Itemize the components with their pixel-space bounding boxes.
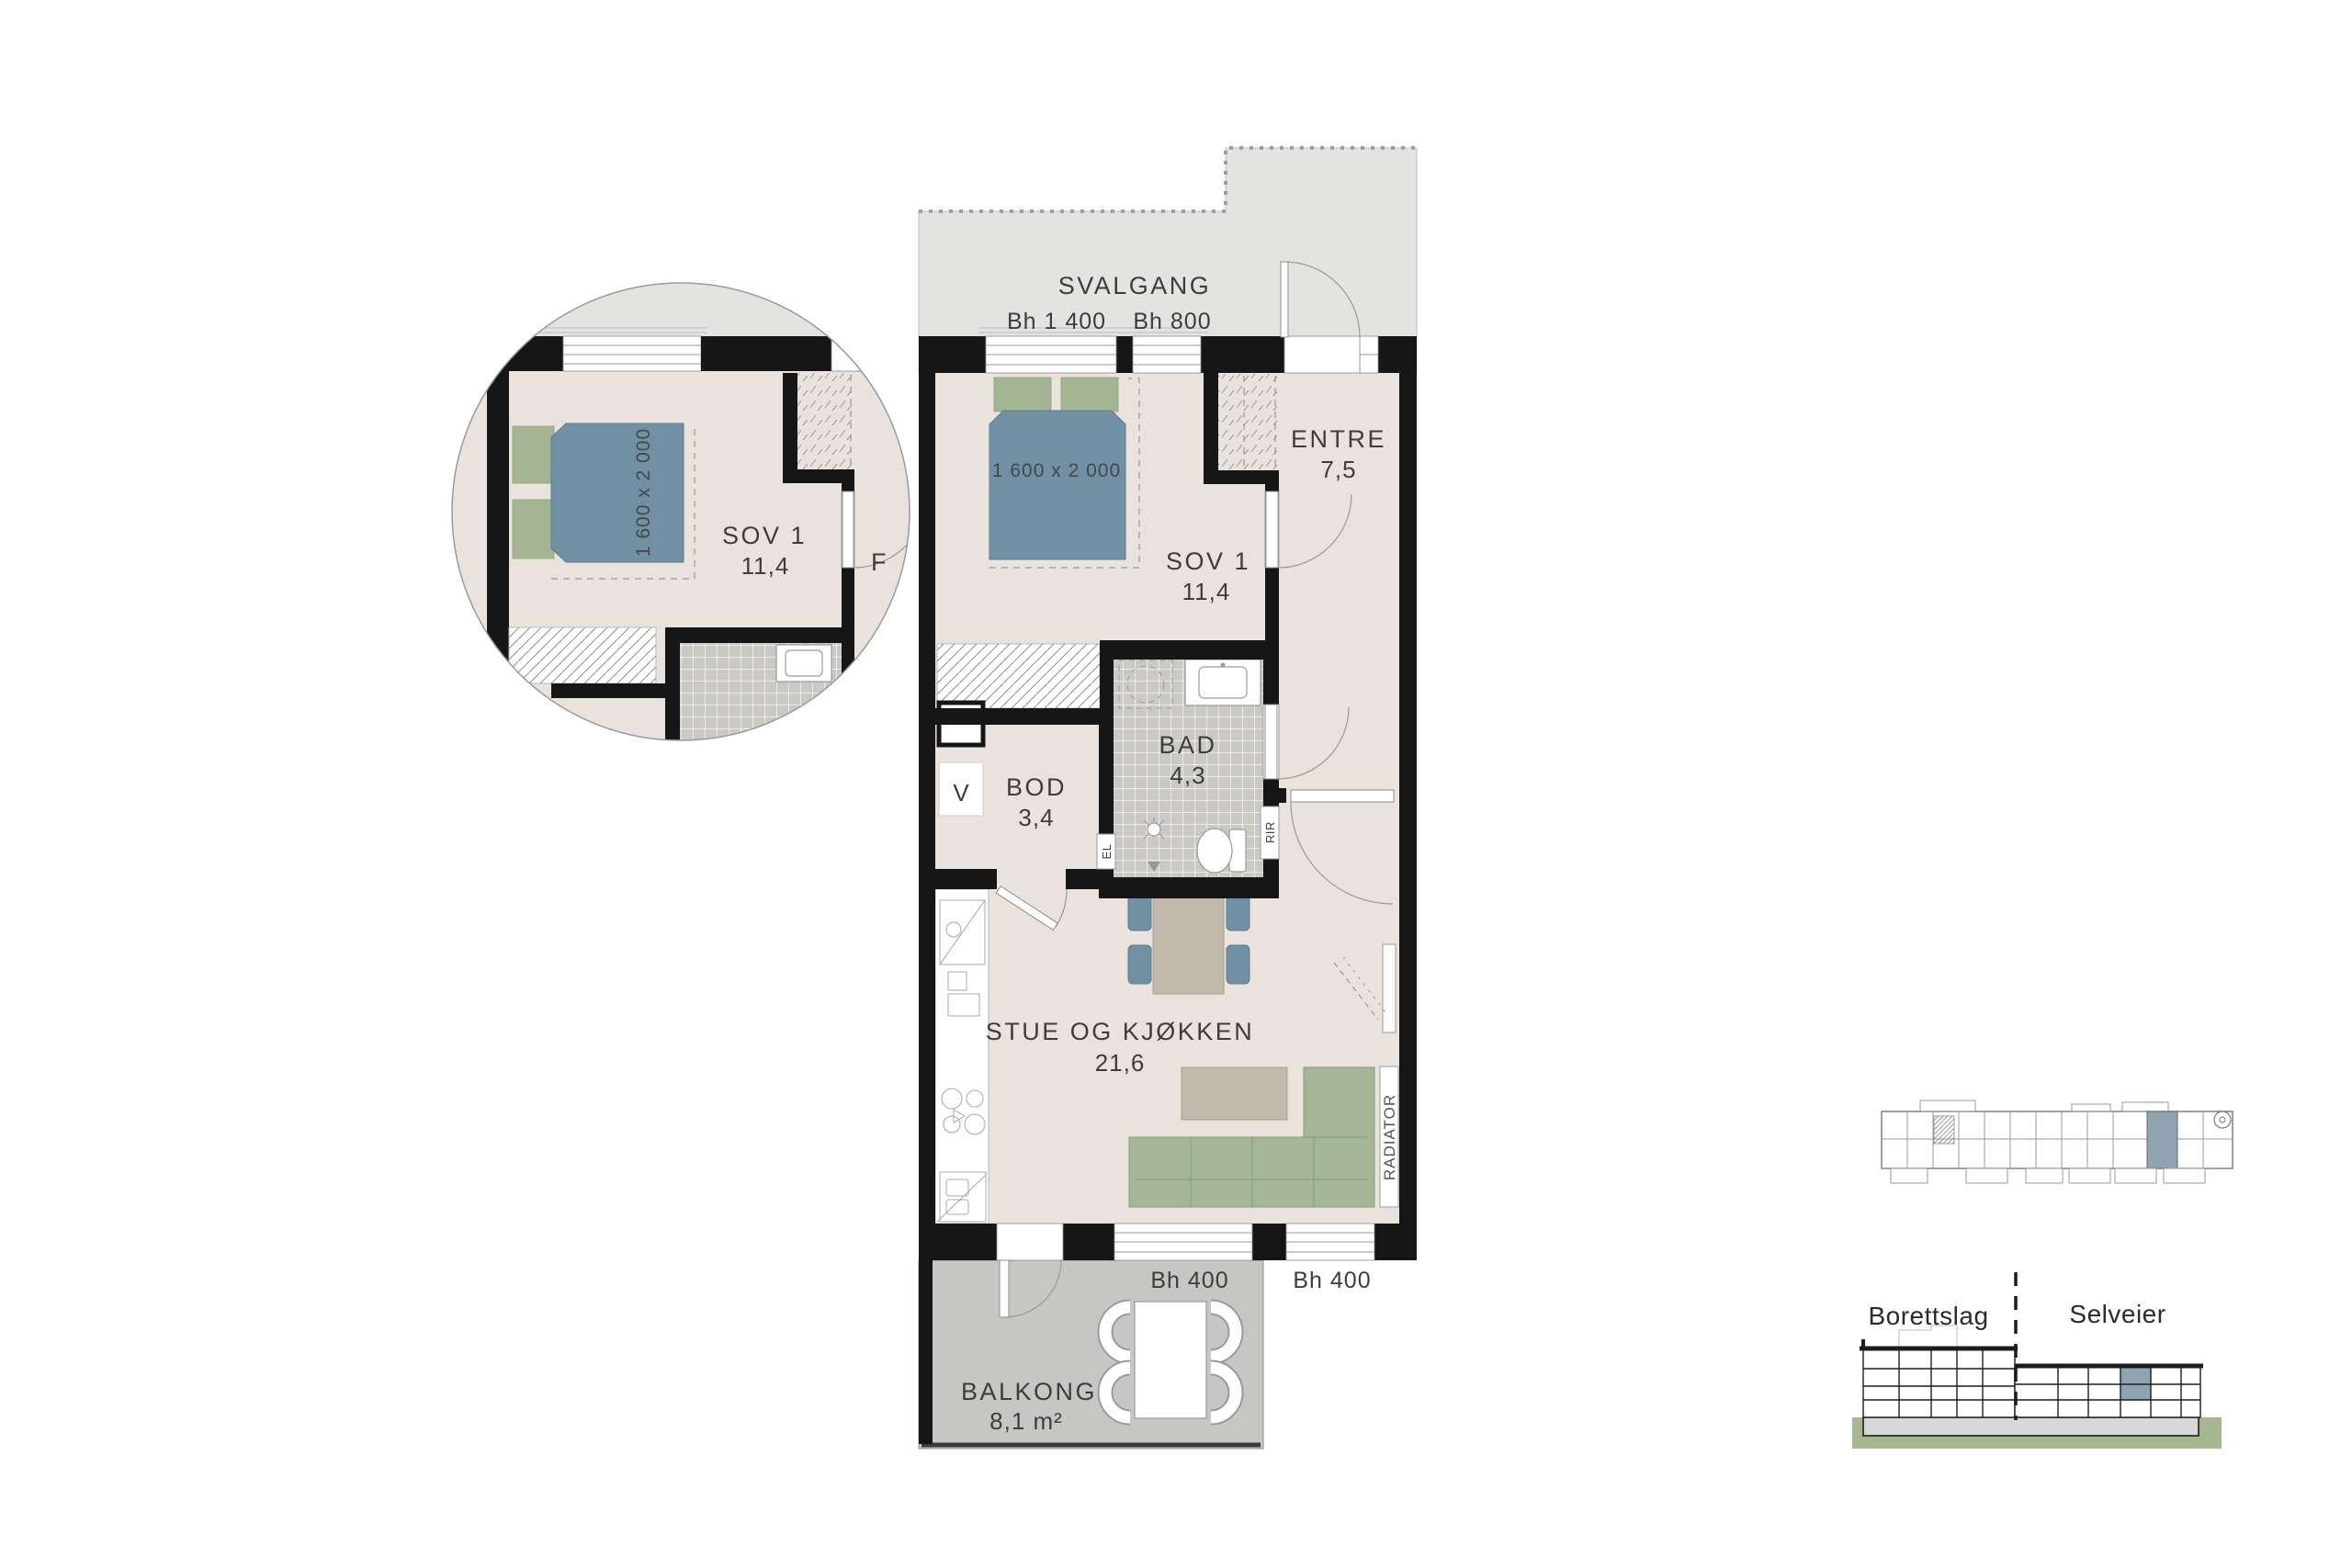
el-label: EL	[1100, 844, 1114, 860]
bed: 1 600 x 2 000	[989, 378, 1139, 568]
window-height-label-bh800: Bh 800	[1133, 309, 1211, 334]
window-height-label-bh1400: Bh 1 400	[1007, 309, 1106, 334]
entrance-sidelight	[1360, 336, 1378, 373]
key-plan	[1882, 1100, 2233, 1183]
sov1-label: SOV 1	[1166, 547, 1250, 575]
sov1-area: 11,4	[1182, 578, 1231, 605]
balcony: BALKONG 8,1 m² Bh 400 Bh 400	[919, 1260, 1372, 1449]
borettslag-label: Borettslag	[1868, 1302, 1988, 1330]
entre-label: ENTRE	[1291, 425, 1386, 453]
floor-plan-drawing: SVALGANG Bh 1 400 Bh 800 BALKONG 8,1 m²	[0, 0, 2352, 1568]
pillow-left	[994, 378, 1051, 412]
balkong-label: BALKONG	[961, 1378, 1097, 1405]
radiator-label: RADIATOR	[1381, 1094, 1398, 1180]
main-plan: SVALGANG Bh 1 400 Bh 800 BALKONG 8,1 m²	[919, 148, 1417, 1449]
detail-bed-dimension: 1 600 x 2 000	[633, 428, 654, 557]
detail-sov1-label: SOV 1	[722, 522, 807, 549]
spiral-stair-icon	[2214, 1111, 2231, 1128]
coffee-table	[1182, 1067, 1287, 1120]
window-bh400-right	[1286, 1224, 1374, 1260]
stue-area: 21,6	[1095, 1049, 1146, 1077]
pillow-right	[1061, 378, 1118, 412]
balkong-area: 8,1 m²	[989, 1407, 1063, 1435]
selveier-block	[2015, 1366, 2203, 1417]
ventilation-label: V	[953, 779, 969, 807]
window-bh800	[1133, 336, 1201, 373]
floor-plan-canvas: SVALGANG Bh 1 400 Bh 800 BALKONG 8,1 m²	[0, 0, 2352, 1568]
base-level	[1863, 1417, 2199, 1436]
bad-area: 4,3	[1170, 761, 1205, 789]
ownership-section: Borettslag Selveier	[1852, 1272, 2222, 1449]
entre-area: 7,5	[1320, 456, 1356, 483]
stair-core	[1934, 1116, 1954, 1144]
bod-area: 3,4	[1018, 804, 1054, 831]
bod-label: BOD	[1006, 773, 1067, 801]
detail-clipped-label: F	[871, 548, 888, 576]
bh400-right-label: Bh 400	[1293, 1268, 1371, 1293]
bad-label: BAD	[1159, 731, 1216, 759]
bed-dimension-label: 1 600 x 2 000	[992, 460, 1121, 481]
window-bh400-left	[1114, 1224, 1252, 1260]
entre-closet	[1218, 374, 1277, 470]
bathroom-sink	[1185, 660, 1261, 705]
kitchen-counter	[935, 889, 989, 1224]
selveier-label: Selveier	[2069, 1300, 2165, 1328]
rir-label: RIR	[1263, 821, 1277, 843]
detail-circle: 1 600 x 2 000 SOV 1	[441, 272, 927, 759]
stue-label: STUE OG KJØKKEN	[986, 1018, 1255, 1045]
wardrobe-strip	[937, 644, 1100, 708]
dining-table	[1153, 883, 1224, 994]
svalgang-label: SVALGANG	[1058, 272, 1212, 299]
highlighted-unit	[2147, 1111, 2177, 1168]
bh400-left-label: Bh 400	[1150, 1268, 1228, 1293]
toilet	[1197, 829, 1246, 873]
key-plan-balconies	[1891, 1168, 2205, 1183]
detail-sov1-area: 11,4	[741, 552, 790, 580]
balcony-table	[1135, 1302, 1206, 1418]
borettslag-block	[1860, 1339, 2018, 1417]
window-bh1400	[986, 336, 1116, 373]
